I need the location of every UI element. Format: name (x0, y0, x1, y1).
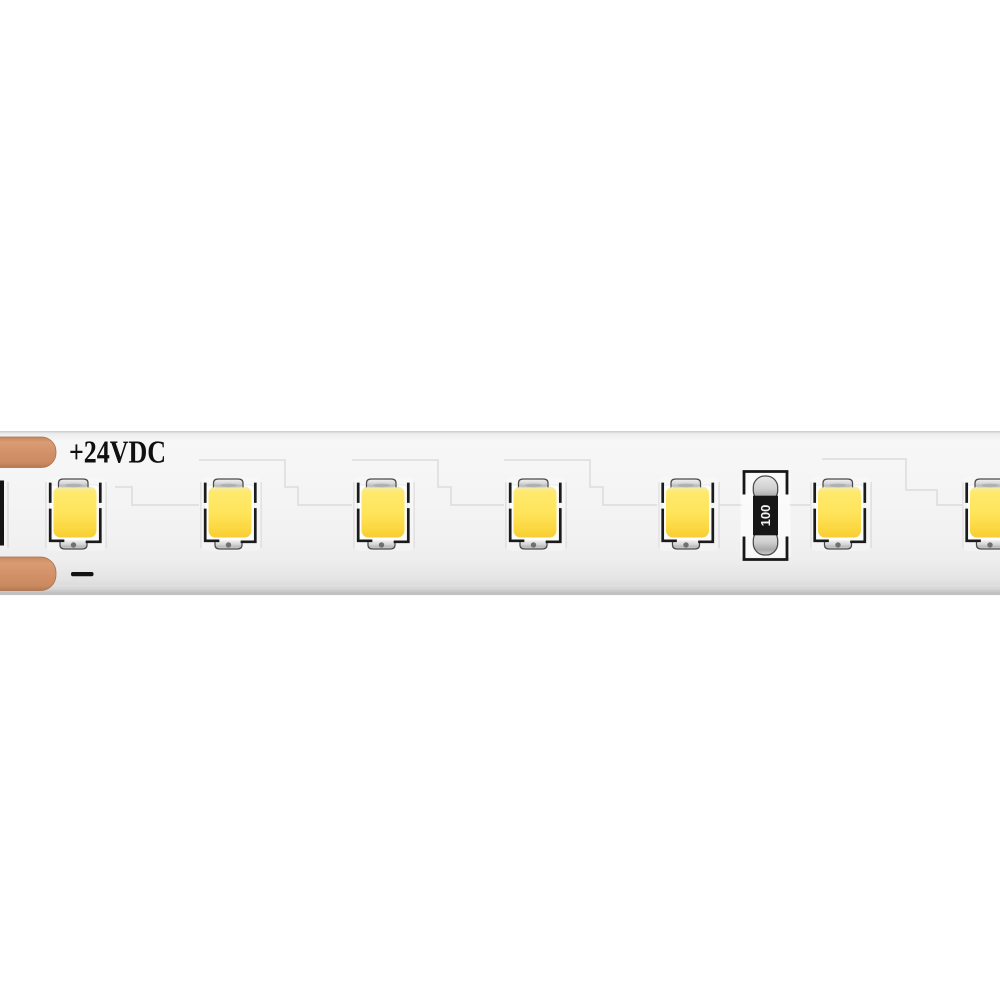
svg-text:100: 100 (758, 505, 773, 527)
svg-text:+24VDC: +24VDC (69, 433, 166, 469)
